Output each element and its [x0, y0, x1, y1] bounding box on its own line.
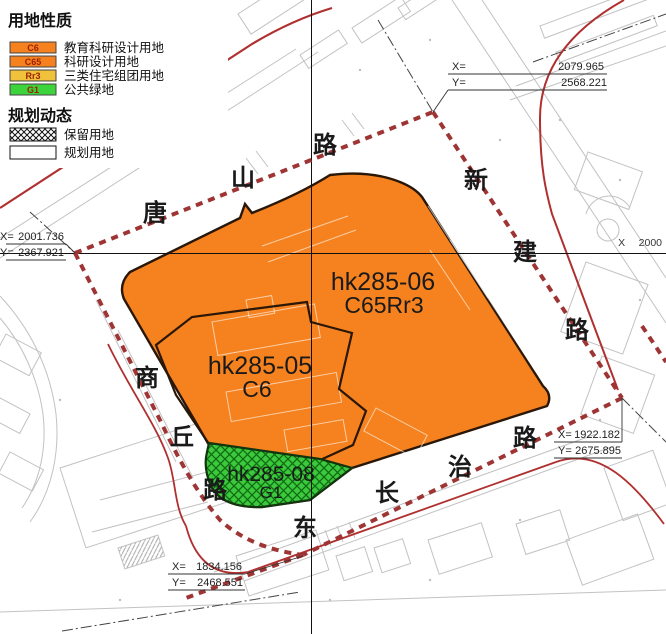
legend-item-rr3: Rr3 三类住宅组团用地: [10, 68, 165, 83]
parcel-hk285-05-code: C6: [242, 376, 271, 402]
legend-label-rr3: 三类住宅组团用地: [64, 68, 165, 83]
road-char: 长: [375, 480, 400, 507]
legend-label-reserved: 保留用地: [64, 128, 115, 142]
legend-label-g1: 公共绿地: [64, 82, 115, 97]
legend-label-c65: 科研设计用地: [64, 54, 140, 69]
legend-code-c6: C6: [27, 43, 39, 53]
north-x-label: X=: [452, 61, 466, 73]
west-x-value: 2001.736: [18, 231, 64, 243]
road-char: 新: [464, 166, 488, 194]
legend-item-c65: C65 科研设计用地: [10, 54, 140, 69]
south-x-label: X=: [172, 561, 186, 573]
legend-title: 用地性质: [8, 11, 72, 30]
legend-dynamics-title: 规划动态: [8, 106, 72, 125]
legend-code-c65: C65: [25, 57, 42, 67]
west-y-value: 2367.921: [18, 247, 64, 259]
planning-map: X 2000 X= 2079.965 Y= 2568.221 X= 2001.7…: [0, 0, 666, 634]
legend-item-c6: C6 教育科研设计用地: [10, 40, 165, 55]
planning-map-page: X 2000 X= 2079.965 Y= 2568.221 X= 2001.7…: [0, 0, 666, 634]
road-char: 商: [135, 364, 159, 392]
east-x-label: X=: [558, 429, 572, 441]
west-y-label: Y=: [0, 247, 14, 259]
road-char: 山: [231, 165, 255, 192]
legend-label-planned: 规划用地: [64, 145, 115, 160]
grid-x-label: X 2000: [618, 237, 662, 249]
south-x-value: 1834.156: [196, 561, 242, 573]
road-char: 唐: [143, 199, 167, 227]
road-char: 路: [513, 424, 538, 452]
road-char: 路: [313, 131, 338, 159]
parcel-hk285-06-code: C65Rr3: [344, 292, 423, 318]
legend-code-rr3: Rr3: [25, 71, 40, 81]
road-char: 治: [448, 453, 472, 481]
road-char: 路: [565, 316, 590, 344]
road-char: 东: [293, 514, 317, 542]
parcel-hk285-08-code: G1: [260, 483, 283, 502]
south-y-value: 2468.551: [197, 577, 243, 589]
legend-swatch-reserved: [10, 128, 56, 141]
north-x-value: 2079.965: [558, 61, 604, 73]
north-y-value: 2568.221: [561, 77, 607, 89]
legend-swatch-planned: [10, 146, 56, 159]
legend: 用地性质 C6 教育科研设计用地 C65 科研设计用地 Rr3 三类住宅组团用地…: [0, 0, 228, 168]
road-char: 丘: [170, 424, 194, 451]
east-y-value: 2675.895: [575, 445, 621, 457]
road-char: 建: [513, 239, 537, 266]
legend-label-c6: 教育科研设计用地: [64, 40, 165, 55]
south-y-label: Y=: [172, 577, 186, 589]
west-x-label: X=: [0, 231, 14, 243]
east-y-label: Y=: [558, 445, 572, 457]
north-y-label: Y=: [452, 77, 466, 89]
road-char: 路: [203, 476, 228, 504]
legend-code-g1: G1: [27, 85, 39, 95]
east-x-value: 1922.182: [574, 429, 620, 441]
